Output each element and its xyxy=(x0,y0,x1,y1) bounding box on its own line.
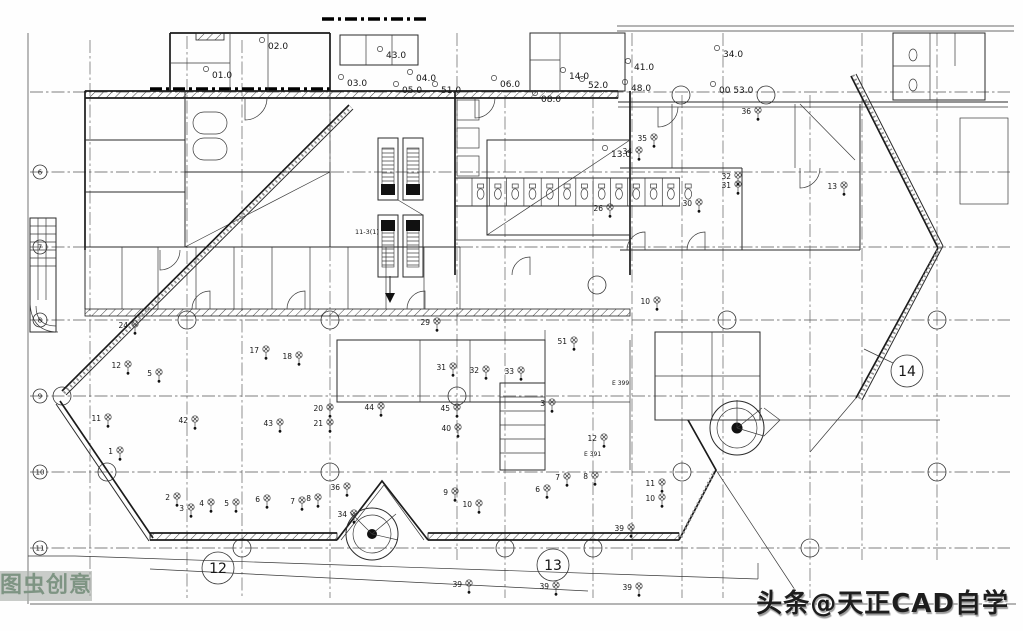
point-label: 36 xyxy=(330,483,340,492)
point-label: 44 xyxy=(364,403,374,412)
cad-floor-plan-sheet: 01.002.003.043.004.005.051.006.008.014.0… xyxy=(0,0,1023,631)
equipment-point-symbol xyxy=(651,134,657,148)
point-label: 17 xyxy=(249,346,259,355)
point-label: 40 xyxy=(441,424,451,433)
equipment-point-symbol xyxy=(156,369,162,383)
point-label: 35 xyxy=(637,134,647,143)
equipment-point-symbol xyxy=(466,580,472,594)
room-label-symbol xyxy=(259,37,264,42)
point-label: 6 xyxy=(535,485,540,494)
equipment-point-symbol xyxy=(601,434,607,448)
room-label-symbol xyxy=(393,81,398,86)
point-label: 5 xyxy=(224,499,229,508)
room-label: 34.0 xyxy=(723,50,743,60)
equipment-point-symbol xyxy=(277,419,283,433)
room-label: 06.0 xyxy=(500,80,520,90)
equipment-point-symbol xyxy=(344,483,350,497)
equipment-point-symbol xyxy=(483,366,489,380)
point-label: 30 xyxy=(682,199,692,208)
section-bubble-label: 14 xyxy=(898,364,916,380)
wc-symbol xyxy=(668,189,675,199)
point-label: 31 xyxy=(436,363,446,372)
point-label: 51 xyxy=(557,337,567,346)
equipment-point-symbol xyxy=(264,495,270,509)
room-label-symbol xyxy=(491,75,496,80)
wc-symbol xyxy=(512,189,519,199)
point-label: 7 xyxy=(555,473,560,482)
equipment-point-symbol xyxy=(755,107,761,121)
point-label: 9 xyxy=(443,488,448,497)
equipment-point-symbol xyxy=(315,494,321,508)
equipment-point-symbol xyxy=(296,352,302,366)
section-bubble-label: 12 xyxy=(209,561,227,577)
room-label-symbol xyxy=(602,145,607,150)
point-label: 43 xyxy=(263,419,273,428)
spiral-stair-left xyxy=(346,508,398,560)
point-label: 1 xyxy=(108,447,113,456)
point-label: 7 xyxy=(290,497,295,506)
room-label: 08.0 xyxy=(541,95,561,105)
equipment-point-symbol xyxy=(450,363,456,377)
room-label: 48.0 xyxy=(631,84,651,94)
equipment-point-symbol xyxy=(549,399,555,413)
equipment-point-symbol xyxy=(299,497,305,511)
wc-symbol xyxy=(598,189,605,199)
point-label: 33 xyxy=(504,367,514,376)
point-label: 20 xyxy=(313,404,323,413)
point-label: 13 xyxy=(827,182,837,191)
room-label: 00 53.0 xyxy=(719,86,754,96)
equipment-point-symbol xyxy=(208,499,214,513)
wc-tank xyxy=(547,184,553,188)
room-label: 43.0 xyxy=(386,51,406,61)
equipment-point-symbol xyxy=(476,500,482,514)
point-label: 31 xyxy=(721,181,731,190)
point-label: 5 xyxy=(147,369,152,378)
floor-plan-svg: 01.002.003.043.004.005.051.006.008.014.0… xyxy=(0,0,1023,631)
wc-tank xyxy=(512,184,518,188)
wc-symbol xyxy=(616,189,623,199)
room-label-symbol xyxy=(625,58,630,63)
point-label: 39 xyxy=(452,580,462,589)
wc-symbol xyxy=(495,189,502,199)
room-code-label: E 391 xyxy=(584,451,601,458)
section-bubbles-layer: 121314 xyxy=(202,349,923,584)
room-label: 03.0 xyxy=(347,79,367,89)
point-label: 8 xyxy=(583,472,588,481)
point-label: 3 xyxy=(179,504,184,513)
wc-tank xyxy=(633,184,639,188)
equipment-point-symbol xyxy=(659,494,665,508)
point-label: 24 xyxy=(118,321,128,330)
point-label: 39 xyxy=(539,582,549,591)
row-markers-layer: 67891011 xyxy=(33,165,47,555)
wc-symbol xyxy=(477,189,484,199)
point-label: 32 xyxy=(469,366,479,375)
equipment-point-symbol xyxy=(696,199,702,213)
point-label: 36 xyxy=(741,107,751,116)
row-marker-label: 11 xyxy=(36,545,45,553)
room-code-label: E 399 xyxy=(612,380,629,387)
point-label: 10 xyxy=(640,297,650,306)
point-label: 34 xyxy=(622,147,632,156)
wc-symbol xyxy=(529,189,536,199)
equipment-point-symbol xyxy=(571,337,577,351)
room-label-symbol xyxy=(203,66,208,71)
room-label-symbol xyxy=(560,67,565,72)
annotations-layer: 11-3(1) xyxy=(355,228,379,236)
equipment-point-symbol xyxy=(564,473,570,487)
wc-tank xyxy=(616,184,622,188)
equipment-points-layer: 2412511142431718202123456783634294540910… xyxy=(91,107,847,597)
section-bubble-label: 13 xyxy=(544,558,562,574)
room-label: 52.0 xyxy=(588,81,608,91)
equipment-point-symbol xyxy=(378,403,384,417)
wc-symbol xyxy=(546,189,553,199)
point-label: 10 xyxy=(645,494,655,503)
point-label: 12 xyxy=(587,434,597,443)
point-label: 39 xyxy=(622,583,632,592)
point-label: 11 xyxy=(91,414,101,423)
point-label: 12 xyxy=(111,361,121,370)
watermark-toutiao: 头条@天正CAD自学 xyxy=(756,583,1009,620)
point-label: 26 xyxy=(593,204,603,213)
room-label-symbol xyxy=(710,81,715,86)
point-label: 34 xyxy=(337,510,347,519)
room-label: 14.0 xyxy=(569,72,589,82)
equipment-point-symbol xyxy=(117,447,123,461)
equipment-point-symbol xyxy=(455,424,461,438)
room-label: 51.0 xyxy=(441,86,461,96)
row-marker-label: 8 xyxy=(38,317,42,325)
point-label: 2 xyxy=(165,493,170,502)
equipment-point-symbol xyxy=(636,147,642,161)
equipment-point-symbol xyxy=(518,367,524,381)
equipment-point-symbol xyxy=(233,499,239,513)
point-label: 10 xyxy=(462,500,472,509)
wc-tank xyxy=(495,184,501,188)
wc-tank xyxy=(478,184,484,188)
wc-tank xyxy=(564,184,570,188)
room-label: 41.0 xyxy=(634,63,654,73)
wc-tank xyxy=(668,184,674,188)
escalators xyxy=(378,138,423,277)
room-label-symbol xyxy=(407,69,412,74)
row-marker-label: 7 xyxy=(38,244,42,252)
point-label: 32 xyxy=(721,172,731,181)
room-label-symbol xyxy=(338,74,343,79)
equipment-point-symbol xyxy=(636,583,642,597)
room-label: 01.0 xyxy=(212,71,232,81)
equipment-point-symbol xyxy=(659,479,665,493)
room-label: 02.0 xyxy=(268,42,288,52)
wc-symbol xyxy=(650,189,657,199)
equipment-point-symbol xyxy=(841,182,847,196)
wc-tank xyxy=(599,184,605,188)
watermark-tuchong: 图虫创意 xyxy=(0,571,92,601)
direction-arrow xyxy=(385,276,395,303)
equipment-point-symbol xyxy=(544,485,550,499)
point-label: 6 xyxy=(255,495,260,504)
wc-tank xyxy=(651,184,657,188)
spiral-stair-right xyxy=(710,400,780,455)
wc-symbol xyxy=(685,189,692,199)
door-arcs xyxy=(160,98,820,309)
point-label: 18 xyxy=(282,352,292,361)
wc-tank xyxy=(530,184,536,188)
equipment-point-symbol xyxy=(735,172,741,186)
room-codes-layer: E 391E 399 xyxy=(584,380,629,458)
equipment-point-symbol xyxy=(553,582,559,596)
equipment-point-symbol xyxy=(192,416,198,430)
wc-tank xyxy=(685,184,691,188)
point-label: 45 xyxy=(440,404,450,413)
annotation-label: 11-3(1) xyxy=(355,228,379,236)
parapet-wedge xyxy=(28,556,758,591)
row-marker-label: 9 xyxy=(38,393,42,401)
equipment-point-symbol xyxy=(654,297,660,311)
room-label-symbol xyxy=(714,45,719,50)
point-label: 29 xyxy=(420,318,430,327)
point-label: 42 xyxy=(178,416,188,425)
wc-symbol xyxy=(564,189,571,199)
row-marker-label: 6 xyxy=(38,169,43,177)
room-label-symbol xyxy=(377,46,382,51)
equipment-point-symbol xyxy=(105,414,111,428)
room-label: 05.0 xyxy=(402,86,422,96)
point-label: 11 xyxy=(645,479,655,488)
equipment-point-symbol xyxy=(188,504,194,518)
equipment-point-symbol xyxy=(125,361,131,375)
wc-symbol xyxy=(581,189,588,199)
exterior-stair-left xyxy=(30,218,58,332)
point-label: 3 xyxy=(540,399,545,408)
point-label: 39 xyxy=(614,524,624,533)
row-marker-label: 10 xyxy=(36,469,45,477)
point-label: 4 xyxy=(199,499,204,508)
point-label: 21 xyxy=(313,419,323,428)
wc-symbol xyxy=(633,189,640,199)
wc-tank xyxy=(581,184,587,188)
equipment-point-symbol xyxy=(263,346,269,360)
point-label: 8 xyxy=(306,494,311,503)
